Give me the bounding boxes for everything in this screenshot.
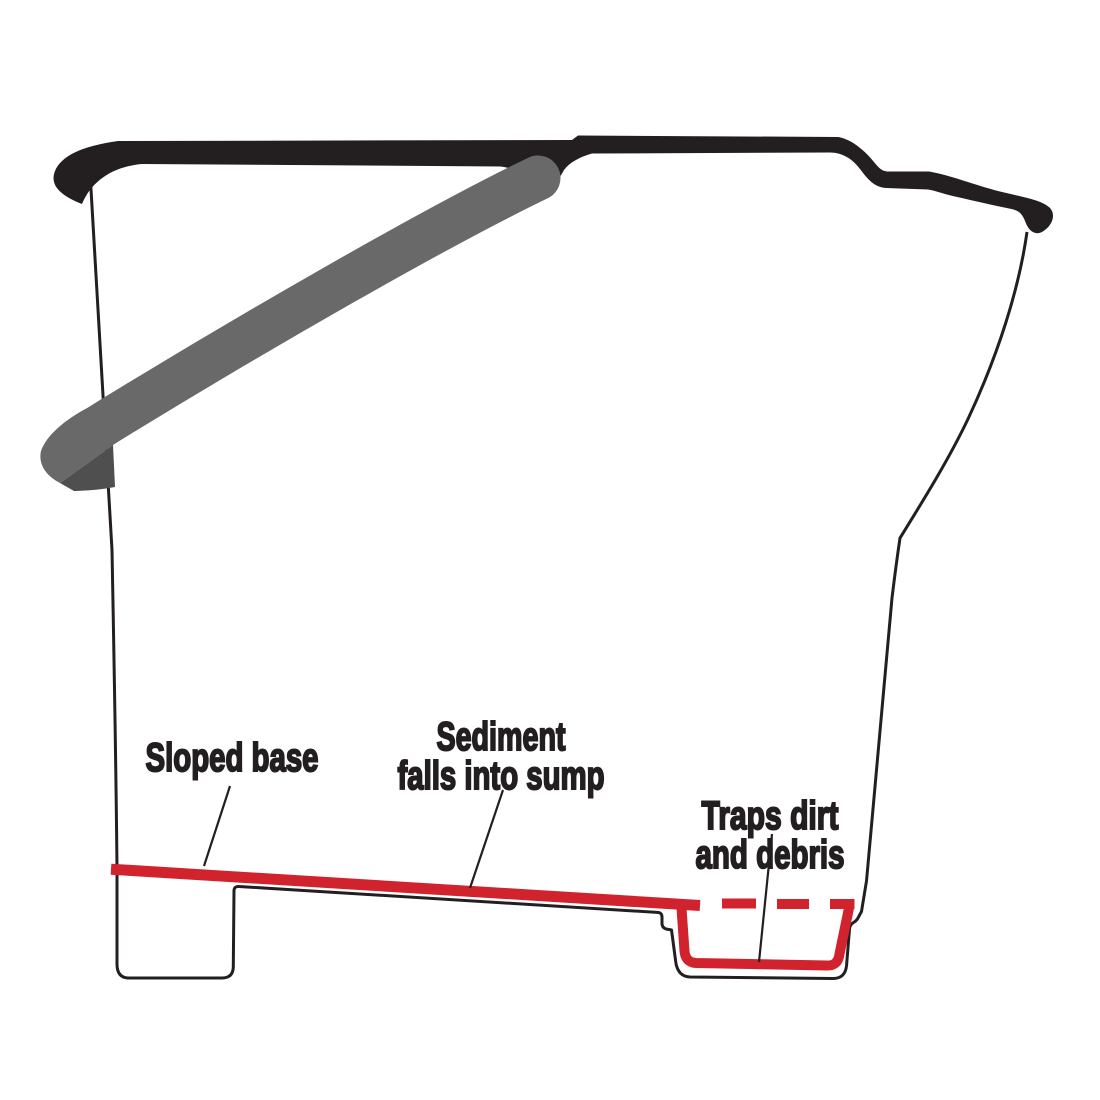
svg-text:Sediment: Sediment <box>437 715 566 759</box>
svg-text:Traps dirt: Traps dirt <box>702 794 839 838</box>
svg-text:and debris: and debris <box>696 833 845 877</box>
svg-text:Sloped base: Sloped base <box>146 736 319 780</box>
svg-text:falls into sump: falls into sump <box>398 754 605 798</box>
